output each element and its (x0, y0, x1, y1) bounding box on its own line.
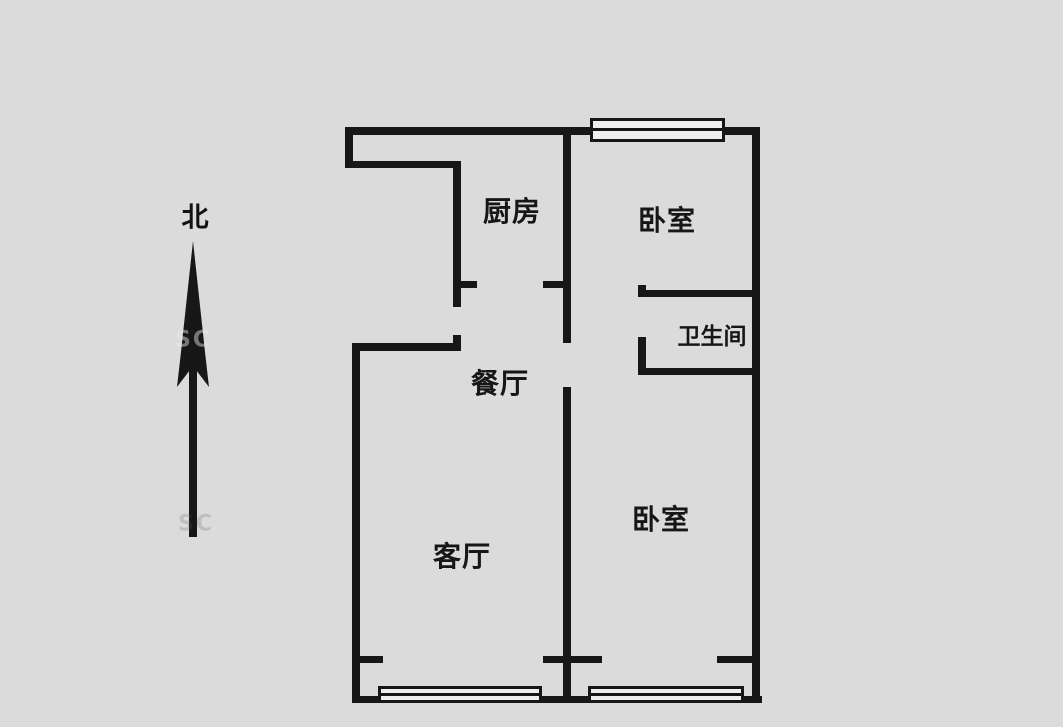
wall-kitchen-bottom-right-tick (543, 281, 563, 288)
wall-kitchen-left (453, 161, 461, 307)
wall-kitchen-bottom-left-tick (461, 281, 477, 288)
room-label-bathroom: 卫生间 (678, 317, 747, 351)
wall-bathroom-bottom (638, 368, 757, 375)
wall-bedroom-bay-right-tick (717, 656, 752, 663)
room-label-dining: 餐厅 (471, 362, 529, 402)
wall-top-left-span (345, 127, 591, 135)
north-label: 北 (182, 196, 209, 235)
wall-center-lower (563, 387, 571, 703)
wall-living-bay-left-tick (360, 656, 383, 663)
wall-notch-bottom (345, 161, 461, 168)
wall-right-outer (752, 127, 760, 703)
window-symbol-living (378, 686, 542, 703)
floorplan-canvas: 北 SC SC 厨房 卧室 卫生间 餐厅 客厅 卧室 (0, 0, 1063, 727)
wall-bathroom-top (638, 290, 757, 297)
wall-bottom-left-span (352, 696, 381, 703)
wall-bottom-right-span (742, 696, 762, 703)
window-symbol-bedroom-bottom (588, 686, 744, 703)
room-label-bedroom-top: 卧室 (638, 199, 696, 239)
north-arrow-icon (170, 234, 220, 544)
wall-dining-top (352, 343, 461, 351)
wall-kitchen-door-stub (453, 335, 461, 343)
wall-bottom-mid-span (540, 696, 590, 703)
window-symbol-bedroom-top (590, 118, 725, 142)
room-label-bedroom-bottom: 卧室 (632, 498, 690, 538)
wall-bedroom-bay-left-tick (571, 656, 602, 663)
wall-living-bay-right-tick (543, 656, 563, 663)
room-label-kitchen: 厨房 (483, 190, 541, 230)
wall-center-upper (563, 127, 571, 343)
wall-left-outer (352, 343, 360, 703)
room-label-living: 客厅 (433, 535, 491, 575)
